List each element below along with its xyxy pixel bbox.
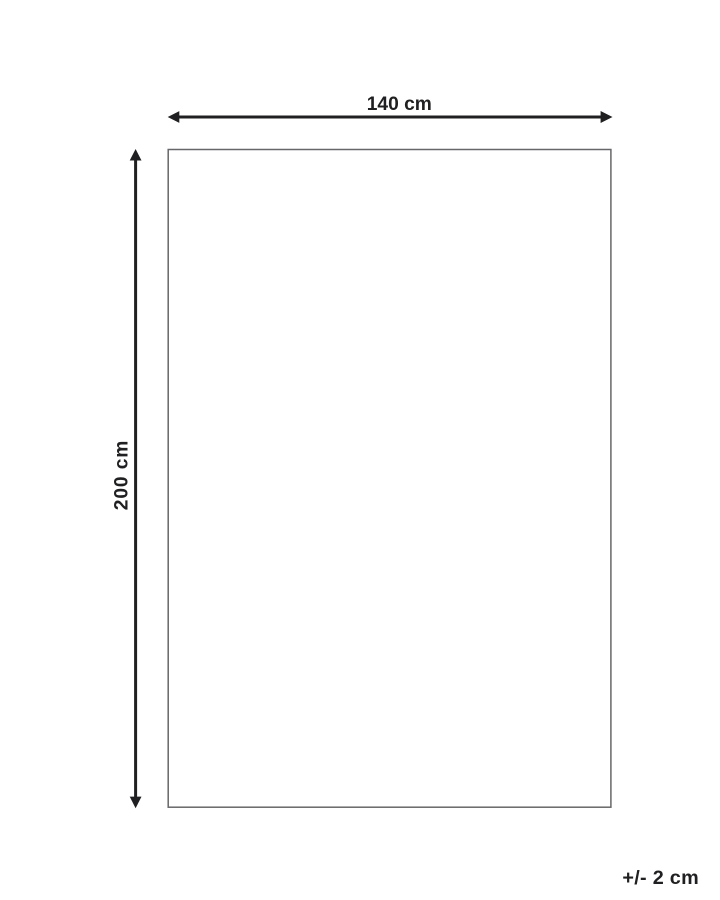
svg-text:+/- 2 cm: +/- 2 cm: [622, 867, 699, 889]
svg-text:200 cm: 200 cm: [111, 440, 132, 510]
svg-text:140 cm: 140 cm: [367, 94, 432, 115]
